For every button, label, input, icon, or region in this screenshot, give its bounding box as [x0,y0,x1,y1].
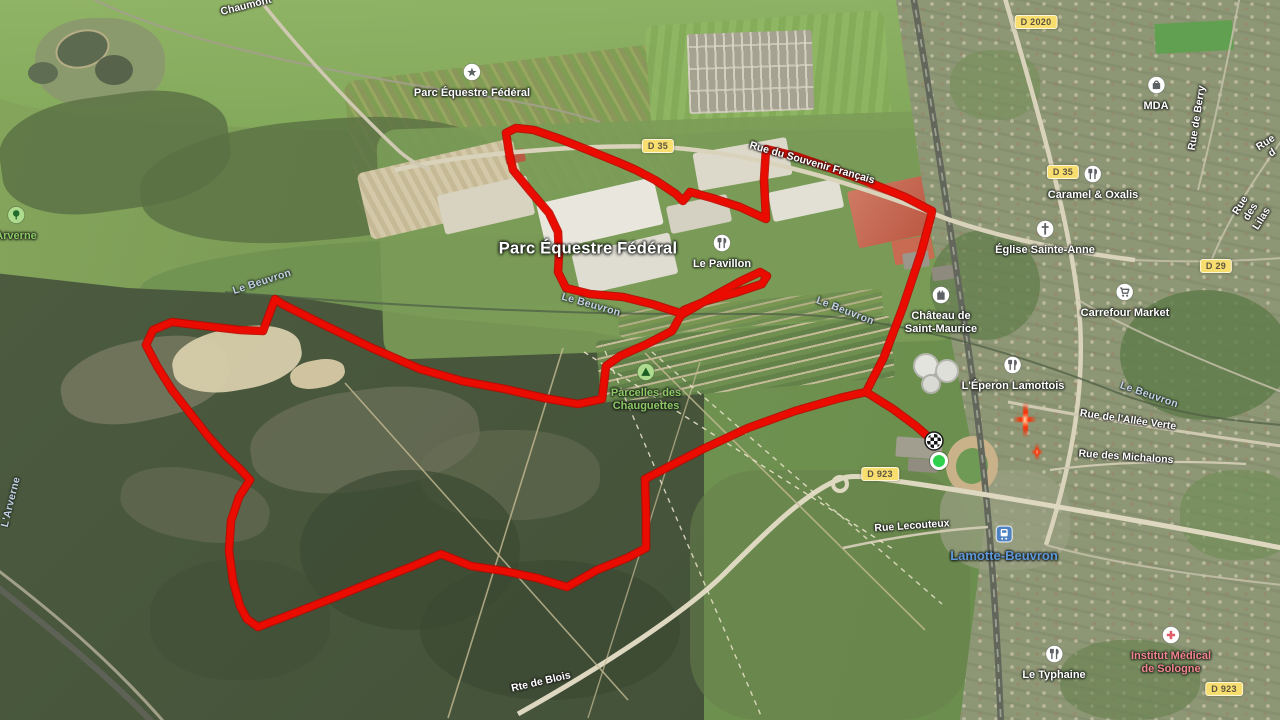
poi-label: Institut Médical de Sologne [1131,650,1211,675]
satellite-map[interactable]: ChaumontRue du Souvenir FrançaisRue de B… [0,0,1280,720]
poi-label: Parcelles des Chauguettes [611,387,681,412]
poi-label: Arverne [0,230,37,243]
poi-lamotte-beuvron[interactable]: Lamotte-Beuvron [950,525,1058,564]
poi-arverne[interactable]: Arverne [0,206,37,243]
poi-label: L'Éperon Lamottois [962,380,1065,393]
water-label: Le Beuvron [231,267,293,298]
poi-label: Caramel & Oxalis [1048,189,1139,202]
restaurant-icon[interactable] [1004,356,1022,379]
restaurant-icon[interactable] [713,234,731,257]
road-label: Rte de Blois [510,669,572,695]
poi-label: Carrefour Market [1081,307,1170,320]
poi-caramel-oxalis[interactable]: Caramel & Oxalis [1048,165,1139,202]
water-label: Le Beuvron [560,291,622,320]
poi-le-pavillon[interactable]: Le Pavillon [693,234,751,271]
road-label: Chaumont [219,0,272,18]
poi-le-typhaine[interactable]: Le Typhaine [1022,645,1085,682]
water-label: L'Arverne [0,476,23,529]
road-label: Rue de l'Allée Verte [1079,407,1177,433]
road-label: Rue Lecouteux [874,517,950,535]
labels-layer: ChaumontRue du Souvenir FrançaisRue de B… [0,0,1280,720]
church-icon[interactable] [1036,220,1054,243]
road-label: Rue des Michalons [1078,448,1174,467]
water-label: Le Beuvron [814,294,875,327]
hospital-icon[interactable] [1162,626,1180,649]
poi-label: Château de Saint-Maurice [905,310,977,335]
poi-label: MDA [1143,100,1168,113]
road-shield-badge: D 29 [1200,259,1232,273]
poi-label: Le Typhaine [1022,669,1085,682]
road-label: Rue d [1254,132,1280,164]
poi-label: Lamotte-Beuvron [950,549,1058,564]
road-shield-badge: D 923 [861,467,899,481]
poi--glise-sainte-anne[interactable]: Église Sainte-Anne [995,220,1095,257]
train-icon[interactable] [995,525,1013,548]
poi-institut-m-dical[interactable]: Institut Médical de Sologne [1131,626,1211,675]
tent-icon[interactable] [637,363,655,386]
road-label: Rue des Lilas [1228,190,1275,234]
castle-icon[interactable] [932,286,950,309]
equestrian-icon[interactable] [463,63,481,86]
poi-ch-teau-de[interactable]: Château de Saint-Maurice [905,286,977,335]
cart-icon[interactable] [1116,283,1134,306]
poi-label: Parc Équestre Fédéral [414,87,530,100]
tree-icon[interactable] [7,206,25,229]
poi-label: Église Sainte-Anne [995,244,1095,257]
restaurant-icon[interactable] [1045,645,1063,668]
poi-parcelles-des[interactable]: Parcelles des Chauguettes [611,363,681,412]
poi-carrefour-market[interactable]: Carrefour Market [1081,283,1170,320]
restaurant-icon[interactable] [1084,165,1102,188]
road-shield-badge: D 923 [1205,682,1243,696]
store-icon[interactable] [1147,76,1165,99]
road-shield-badge: D 35 [642,139,674,153]
area-label-parc-equestre: Parc Équestre Fédéral [499,239,677,258]
road-label: Rue de Berry [1186,85,1208,151]
road-label: Rue du Souvenir Français [748,139,876,187]
poi-mda[interactable]: MDA [1143,76,1168,113]
water-label: Le Beuvron [1118,379,1179,410]
road-shield-badge: D 2020 [1015,15,1058,29]
poi-parc-questre-f-d-ral[interactable]: Parc Équestre Fédéral [414,63,530,100]
poi-l-peron-lamottois[interactable]: L'Éperon Lamottois [962,356,1065,393]
poi-label: Le Pavillon [693,258,751,271]
